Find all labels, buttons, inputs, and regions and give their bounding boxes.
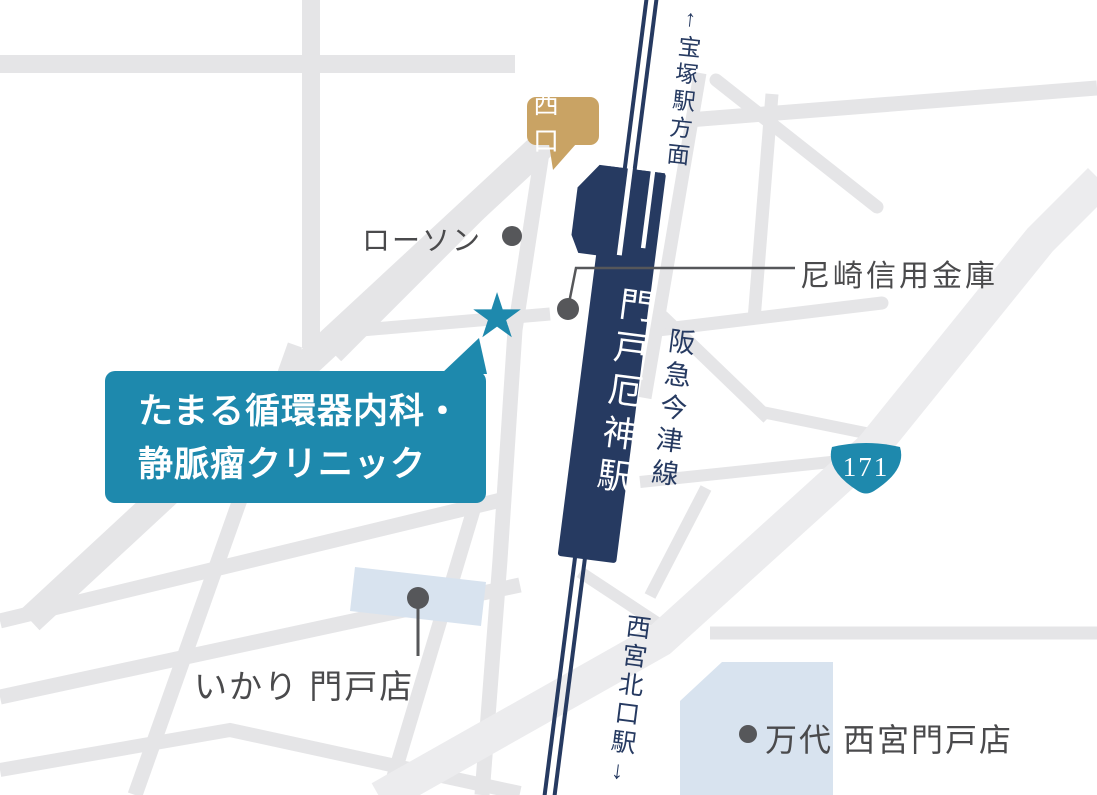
route-171-number: 171 bbox=[830, 448, 902, 486]
west-exit-badge: 西口 bbox=[527, 97, 599, 145]
bank-label: 尼崎信用金庫 bbox=[800, 251, 998, 295]
mandai-dot bbox=[739, 725, 757, 743]
ikari-dot bbox=[407, 587, 429, 609]
clinic-star-marker: ★ bbox=[463, 283, 531, 349]
access-map: 西口 ↑宝塚駅方面 ローソン 尼崎信用金庫 門戸厄神駅 阪急今津線 ★ たまる循… bbox=[0, 0, 1097, 795]
west-exit-label: 西口 bbox=[533, 84, 599, 158]
lawson-label: ローソン bbox=[362, 219, 482, 259]
road bbox=[716, 80, 877, 207]
road bbox=[754, 94, 772, 320]
clinic-name-line2: 静脈瘤クリニック bbox=[138, 438, 486, 491]
mandai-label: 万代 西宮門戸店 bbox=[765, 715, 1013, 761]
clinic-callout: たまる循環器内科・ 静脈瘤クリニック bbox=[105, 371, 486, 503]
ikari-label: いかり 門戸店 bbox=[194, 660, 414, 708]
road bbox=[658, 303, 882, 330]
bank-dot bbox=[557, 298, 579, 320]
lawson-dot bbox=[502, 226, 522, 246]
road bbox=[650, 488, 706, 596]
clinic-name-line1: たまる循環器内科・ bbox=[138, 385, 486, 438]
